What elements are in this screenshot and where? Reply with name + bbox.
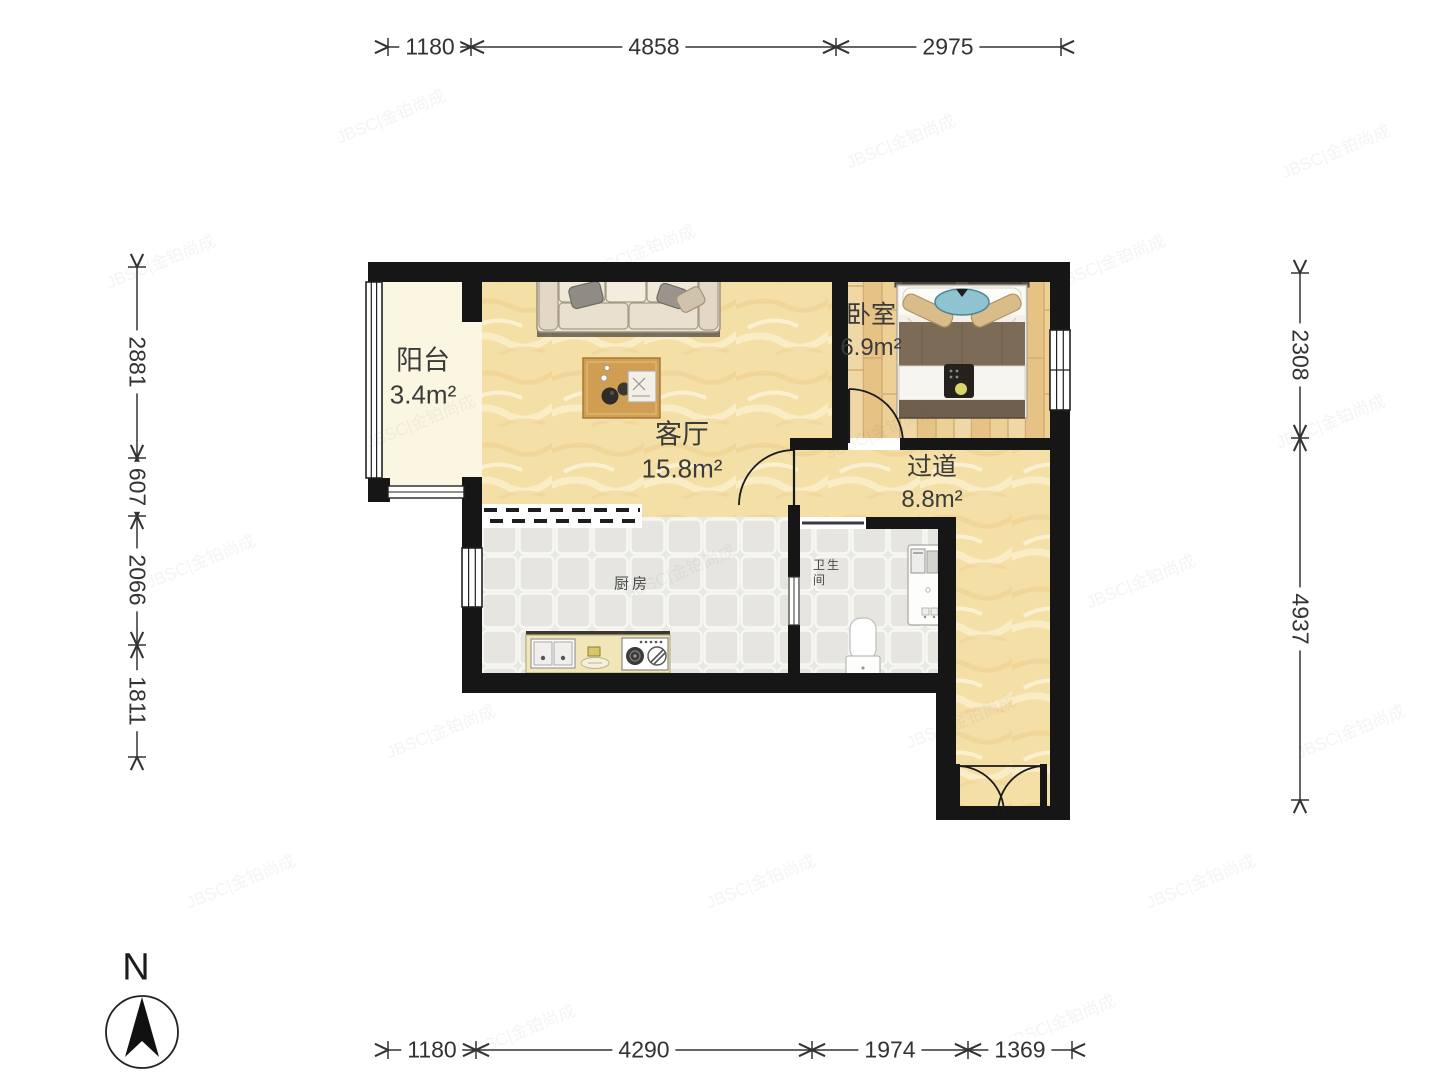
room-label-bedroom: 卧室 6.9m² (840, 299, 901, 363)
dim-top-2: 4858 (622, 34, 685, 61)
dim-bottom (388, 1041, 1072, 1059)
dim-left-1: 2881 (124, 330, 151, 393)
wall-bath-left-upper (788, 520, 800, 577)
floorplan-drawing (0, 0, 1440, 1080)
room-label-bathroom: 卫生间 (813, 558, 853, 588)
room-area: 8.8m² (901, 484, 962, 515)
bed (895, 271, 1029, 418)
wall-balcony-stub-top (462, 282, 482, 322)
wall-bath-right (938, 517, 956, 677)
kitchen-counter (526, 633, 670, 673)
wall-top (368, 262, 1070, 282)
room-name: 卫生间 (813, 558, 841, 587)
dim-right-1: 2308 (1287, 323, 1314, 386)
dim-bottom-4: 1369 (988, 1037, 1051, 1064)
toilet (846, 618, 880, 677)
basin (927, 551, 938, 573)
bathroom-partition-window (789, 577, 799, 625)
room-label-balcony: 阳台 3.4m² (390, 344, 456, 413)
dim-top-1: 1180 (399, 34, 460, 61)
dim-left-4: 1811 (124, 670, 151, 731)
wall-hall-top (790, 438, 848, 450)
wall-bottom (462, 673, 956, 693)
kitchen-keypad (588, 647, 600, 656)
room-name: 卧室 (840, 299, 901, 332)
compass (106, 996, 178, 1068)
dim-bottom-3: 1974 (858, 1037, 921, 1064)
room-name: 阳台 (390, 344, 456, 379)
wall-kitchen-left-upper (462, 477, 482, 548)
room-label-living: 客厅 15.8m² (642, 418, 723, 487)
dim-bottom-2: 4290 (612, 1037, 675, 1064)
wall-door-stub (788, 505, 800, 521)
dim-left-2: 607 (124, 462, 151, 512)
bathroom-vanity (908, 545, 940, 625)
balcony-rail (388, 486, 464, 498)
room-label-hallway: 过道 8.8m² (901, 451, 962, 515)
dim-left-3: 2066 (124, 548, 151, 611)
wall-bath-left-lower (788, 625, 800, 677)
room-area: 15.8m² (642, 453, 723, 487)
room-name: 客厅 (642, 418, 723, 453)
kitchen-window (462, 548, 482, 607)
dim-top-3: 2975 (916, 34, 979, 61)
wall-balcony-corner (368, 478, 390, 502)
wall-right-upper (1050, 282, 1070, 330)
wall-right-lower (1050, 410, 1070, 820)
teapot (602, 388, 619, 405)
room-area: 3.4m² (390, 379, 456, 413)
coffee-table (583, 358, 660, 418)
dim-right-2: 4937 (1287, 587, 1314, 650)
balcony-window (366, 282, 382, 478)
open-kitchen-dashed-boundary (482, 504, 642, 528)
sofa (537, 275, 720, 337)
wall-bath-top (866, 517, 943, 529)
room-area: 6.9m² (840, 332, 901, 363)
room-label-kitchen: 厨房 (614, 574, 650, 594)
room-name: 厨房 (614, 575, 650, 592)
compass-north-label: N (122, 947, 149, 990)
dim-bottom-1: 1180 (401, 1037, 462, 1064)
bedroom-window (1050, 330, 1070, 410)
room-name: 过道 (901, 451, 962, 484)
floorplan-canvas: 阳台 3.4m² 客厅 15.8m² 卧室 6.9m² 过道 8.8m² 厨房 … (0, 0, 1440, 1080)
wall-bedroom-bottom (900, 438, 1050, 450)
